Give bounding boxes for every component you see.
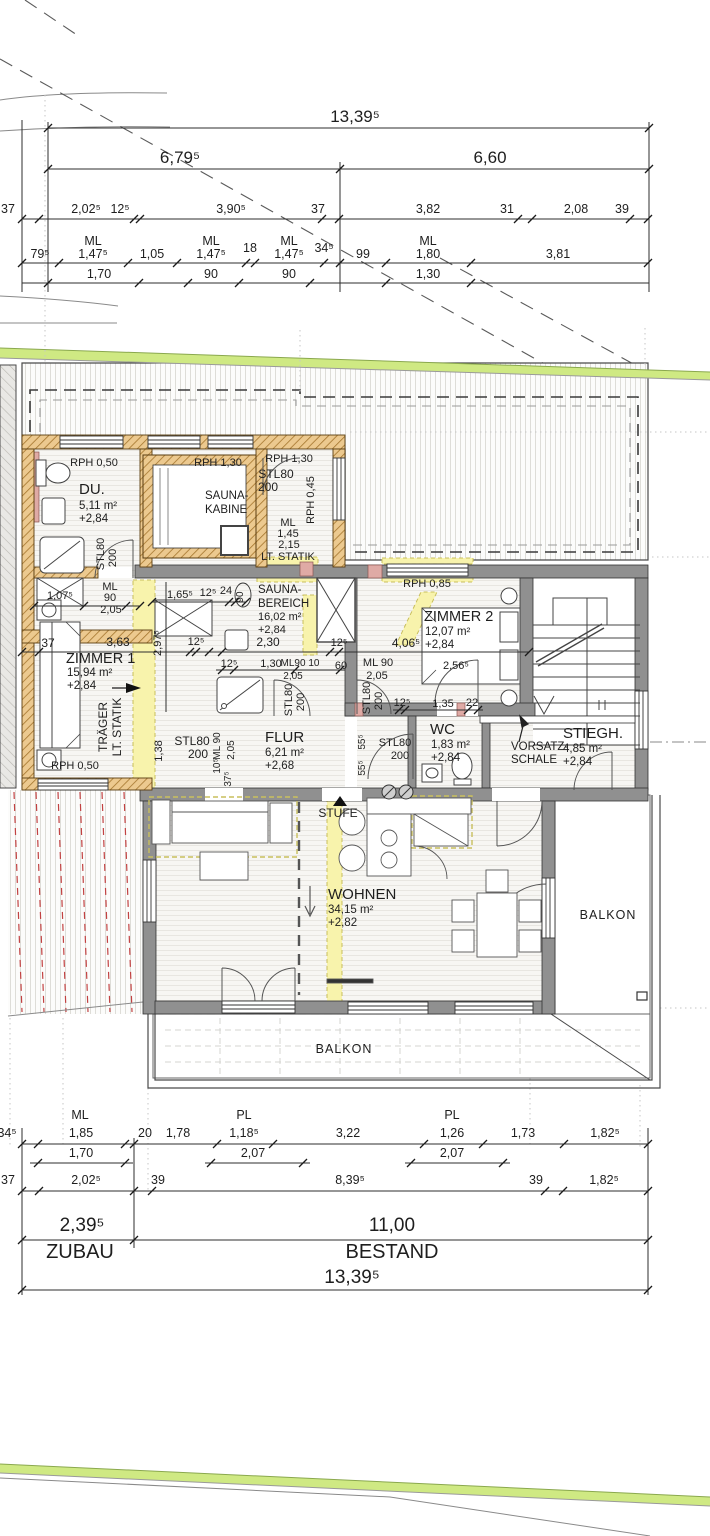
annotation-label: 34,15 m² (328, 904, 374, 916)
annotation-label: 2,05 (366, 670, 387, 682)
room-label-zimmer2: ZIMMER 2 (424, 609, 493, 625)
lower-roof-area (8, 790, 143, 1016)
annotation-label: RPH 0,50 (51, 760, 99, 772)
annotation-label: 1,30 (260, 658, 281, 670)
annotation-label: ML (419, 234, 436, 248)
annotation-label: 2,05 (226, 740, 237, 760)
annotation-label: 1,83 m² (431, 739, 470, 751)
annotation-label: ML 90 (363, 657, 393, 669)
annotation-label: PL (236, 1108, 251, 1122)
annotation-label: 6,79⁵ (160, 148, 200, 167)
annotation-label: 37 (41, 636, 55, 650)
balcony-south (153, 1014, 650, 1078)
annotation-label: 2,15 (278, 539, 299, 551)
annotation-label: RPH 0,45 (305, 476, 317, 524)
annotation-label: 2,02⁵ (71, 1173, 101, 1187)
room-label-wc: WC (430, 721, 455, 738)
annotation-label: 24 (220, 585, 232, 597)
annotation-label: 3,22 (336, 1126, 360, 1140)
annotation-label: 1,82⁵ (589, 1173, 619, 1187)
annotation-label: LT. STATIK (261, 551, 315, 563)
annotation-label: 1,78 (166, 1126, 190, 1140)
annotation-label: 39 (615, 202, 629, 216)
annotation-label: +2,84 (67, 680, 97, 692)
room-label-balkon-sued: BALKON (316, 1042, 373, 1056)
floor-plan-page: 13,39⁵6,79⁵6,60372,02⁵12⁵3,90⁵373,82312,… (0, 0, 710, 1536)
zone-dim-bestand: 11,00 (369, 1215, 415, 1236)
annotation-label: TRÄGER (96, 702, 110, 752)
annotation-label: 90 (235, 591, 246, 603)
annotation-label: 16,02 m² (258, 611, 302, 623)
annotation-label: +2,84 (425, 639, 455, 651)
annotation-label: 200 (258, 480, 278, 494)
annotation-label: STL80 (258, 467, 294, 481)
annotation-label: 99 (356, 247, 370, 261)
annotation-label: 2,07 (241, 1146, 265, 1160)
annotation-label: 1,26 (440, 1126, 464, 1140)
room-label-flur: FLUR (265, 729, 304, 746)
annotation-label: 1,70 (87, 267, 111, 281)
annotation-label: RPH 1,30 (265, 453, 313, 465)
annotation-label: RPH 0,50 (70, 457, 118, 469)
annotation-label: 15,94 m² (67, 667, 113, 679)
zone-dim-zubau: 2,39⁵ (60, 1215, 105, 1236)
annotation-label: 39 (151, 1173, 165, 1187)
annotation-label: 5,11 m² (79, 500, 117, 512)
annotation-label: 2,02⁵ (71, 202, 101, 216)
annotation-label: 12⁵ (331, 637, 348, 649)
zone-label-bestand: BESTAND (346, 1241, 439, 1263)
annotation-label: 12⁵ (394, 697, 411, 709)
annotation-label: 3,63 (106, 635, 130, 649)
room-label-stiegh: STIEGH. (563, 725, 623, 742)
annotation-label: 12⁵ (188, 636, 205, 648)
annotation-label: 55⁵ (357, 734, 368, 749)
zone-label-zubau: ZUBAU (46, 1241, 114, 1263)
annotation-label: 34⁵ (314, 241, 333, 255)
room-label-wohnen: WOHNEN (328, 886, 396, 903)
annotation-label: 90 (282, 267, 296, 281)
zone-dim-total: 13,39⁵ (324, 1267, 379, 1288)
sauna-heater (221, 526, 248, 555)
annotation-label: RPH 0,85 (403, 578, 451, 590)
annotation-label: 55⁵ (357, 760, 368, 775)
annotation-label: 12⁵ (221, 658, 238, 670)
floor-plan-drawing: 13,39⁵6,79⁵6,60372,02⁵12⁵3,90⁵373,82312,… (0, 0, 710, 1536)
annotation-label: 200 (391, 750, 409, 762)
annotation-label: ML 90 (212, 732, 223, 760)
annotation-label: 18 (243, 241, 257, 255)
annotation-label: STL80 (174, 734, 210, 748)
annotation-label: 1,73 (511, 1126, 535, 1140)
annotation-label: RPH 1,30 (194, 457, 242, 469)
annotation-label: 1,35 (432, 698, 453, 710)
room-label-balkon-ost: BALKON (580, 908, 637, 922)
annotation-label: 1,38 (153, 740, 165, 761)
annotation-label: 2,97⁵ (152, 630, 164, 656)
annotation-label: ML (280, 234, 297, 248)
balcony-east (555, 795, 650, 1014)
annotation-label: 90 (204, 267, 218, 281)
annotation-label: 1,47⁵ (274, 247, 304, 261)
annotation-label: 1,18⁵ (229, 1126, 259, 1140)
annotation-label: ML (202, 234, 219, 248)
annotation-label: 200 (295, 693, 307, 711)
site-boundary-dashed (0, 0, 648, 372)
annotation-label: 2,08 (564, 202, 588, 216)
annotation-label: KABINE (205, 504, 248, 516)
annotation-label: 90 (104, 592, 116, 604)
room-label-zimmer1: ZIMMER 1 (66, 651, 135, 667)
annotation-label: 2,05 (283, 671, 303, 682)
annotation-label: 8,39⁵ (335, 1173, 365, 1187)
annotation-label: 37 (1, 1173, 15, 1187)
annotation-label: ML (84, 234, 101, 248)
annotation-label: +2,84 (431, 752, 461, 764)
annotation-label: 4,85 m² (563, 743, 602, 755)
room-label-saunabereich: SAUNA- (258, 584, 302, 596)
vorsatzschale-lining (480, 716, 635, 723)
room-label-du: DU. (79, 481, 105, 498)
annotation-label: 60 (335, 660, 347, 672)
annotation-label: 2,56⁵ (443, 660, 469, 672)
annotation-label: 1,82⁵ (590, 1126, 620, 1140)
annotation-label: LT. STATIK (110, 698, 124, 757)
annotation-label: 12,07 m² (425, 626, 471, 638)
annotation-label: STL80 (361, 682, 373, 714)
annotation-label: 200 (373, 692, 385, 710)
annotation-label: 2,05 (100, 604, 121, 616)
annotation-label: 37 (1, 202, 15, 216)
left-wall-strip (0, 365, 16, 788)
room-label-saunakabine: SAUNA- (205, 490, 249, 502)
annotation-label: 1,47⁵ (78, 247, 108, 261)
annotation-label: 10⁵ (212, 758, 223, 773)
annotation-label: PL (444, 1108, 459, 1122)
annotation-label: 1,47⁵ (196, 247, 226, 261)
annotation-label: 1,65⁵ (167, 589, 193, 601)
annotation-label: 3,90⁵ (216, 202, 246, 216)
note-vorsatzschale: VORSATZ- (511, 741, 568, 753)
annotation-label: 1,80 (416, 247, 440, 261)
annotation-label: 200 (188, 747, 208, 761)
annotation-label: 12⁵ (200, 587, 217, 599)
annotation-label: ML90 10 (281, 658, 320, 669)
annotation-label: 3,82 (416, 202, 440, 216)
annotation-label: 200 (107, 549, 119, 567)
note-stufe: STUFE (318, 806, 357, 820)
annotation-label: +2,82 (328, 917, 357, 929)
annotation-label: 1,05 (140, 247, 164, 261)
annotation-label: 3,81 (546, 247, 570, 261)
annotation-label: 12⁵ (110, 202, 129, 216)
annotation-label: 31 (500, 202, 514, 216)
annotation-label: 1,30 (416, 267, 440, 281)
annotation-label: 1,85 (69, 1126, 93, 1140)
annotation-label: STL80 (95, 538, 107, 570)
annotation-label: STL80 (283, 684, 295, 716)
annotation-label: 22 (466, 697, 478, 709)
annotation-label: 13,39⁵ (330, 107, 380, 126)
annotation-label: 34⁵ (0, 1126, 17, 1140)
annotation-label: +2,84 (79, 513, 109, 525)
annotation-label: 4,06⁵ (392, 636, 420, 650)
annotation-label: 20 (138, 1126, 152, 1140)
annotation-label: STL80 (379, 737, 411, 749)
annotation-label: 39 (529, 1173, 543, 1187)
annotation-label: 6,21 m² (265, 747, 304, 759)
annotation-label: 2,30 (256, 635, 280, 649)
annotation-label: 2,07 (440, 1146, 464, 1160)
annotation-label: 37⁵ (223, 771, 234, 786)
annotation-label: SCHALE (511, 754, 557, 766)
annotation-label: 1,70 (69, 1146, 93, 1160)
annotation-label: +2,84 (563, 756, 593, 768)
annotation-label: 1,07⁵ (47, 590, 73, 602)
annotation-label: 6,60 (473, 148, 506, 167)
annotation-label: BEREICH (258, 598, 309, 610)
annotation-label: ML (71, 1108, 88, 1122)
annotation-label: 79⁵ (30, 247, 49, 261)
terrain-band-bottom (0, 1464, 710, 1536)
annotation-label: +2,68 (265, 760, 294, 772)
annotation-label: 37 (311, 202, 325, 216)
